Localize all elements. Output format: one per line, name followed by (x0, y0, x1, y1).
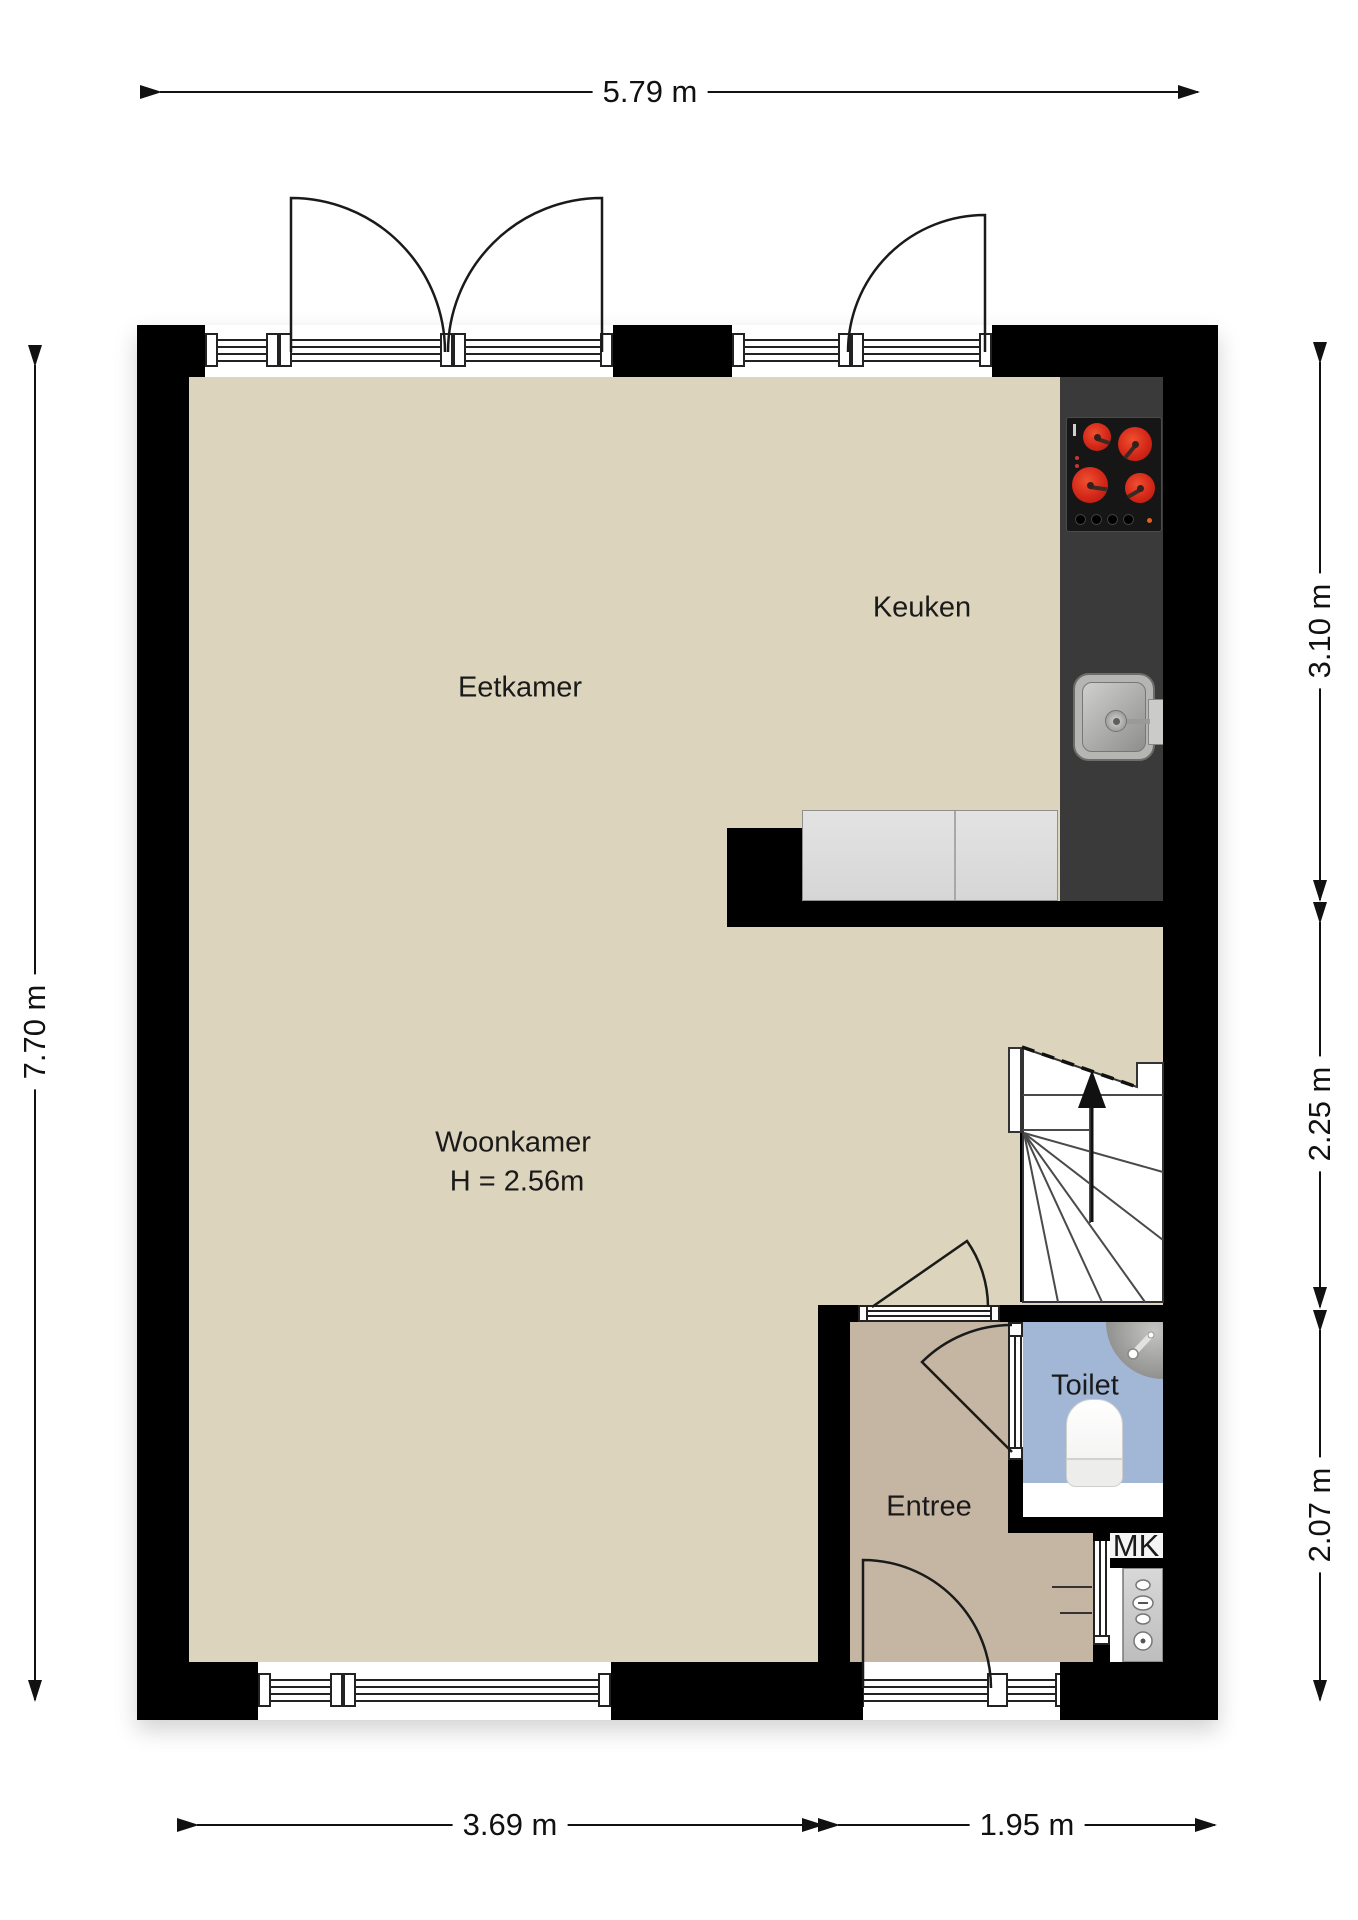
wall-bottom-right (1060, 1662, 1218, 1720)
cooktop (1066, 417, 1162, 532)
wall-top-corner (137, 325, 205, 377)
cooktop-indicator (1147, 518, 1152, 523)
wall-bottom-left (137, 1662, 258, 1720)
wall-entree-top-a (818, 1305, 858, 1322)
window-post (600, 333, 613, 367)
front-door-panel (863, 1679, 988, 1702)
door-post (990, 1305, 1000, 1322)
window-post (258, 1673, 271, 1707)
floorplan-canvas: 5.79 m 7.70 m 3.10 m 2.25 m 2.07 m 3.69 … (0, 0, 1358, 1920)
dim-right-entree: 2.07 m (1300, 1458, 1340, 1573)
window-post (266, 333, 279, 367)
wall-kitchen-divider (802, 901, 1163, 927)
wall-toilet-left (1008, 1460, 1023, 1517)
cooktop-knob (1123, 514, 1134, 525)
mk-door-panel (1093, 1541, 1110, 1635)
meter-strip (1110, 1568, 1123, 1662)
toilet-door-panel (1008, 1337, 1023, 1447)
room-label-mk: MK (1113, 1528, 1160, 1564)
window-post (343, 1673, 356, 1707)
stairs-newel (1008, 1047, 1022, 1133)
dim-top-width: 5.79 m (593, 72, 708, 112)
burner (1072, 467, 1108, 503)
entree-floor-nook (1008, 1533, 1093, 1662)
dim-right-kitchen: 3.10 m (1300, 574, 1340, 689)
room-label-eetkamer: Eetkamer (458, 672, 582, 705)
wall-peninsula-end (727, 828, 802, 927)
window-post (979, 333, 992, 367)
toilet-shelf (1023, 1483, 1163, 1517)
door-post (987, 1673, 1008, 1707)
cooktop-knob (1075, 514, 1086, 525)
faucet-head (1105, 710, 1127, 732)
kitchen-cabinet (802, 810, 1058, 901)
door-post (1008, 1447, 1023, 1460)
window-post (279, 333, 292, 367)
room-label-keuken: Keuken (873, 592, 971, 625)
room-label-entree: Entree (886, 1491, 971, 1524)
window-post (851, 333, 864, 367)
dim-left-height: 7.70 m (15, 975, 55, 1090)
window-post (598, 1673, 611, 1707)
window-post (330, 1673, 343, 1707)
wall-entree-left (818, 1305, 850, 1662)
wall-entree-top-b (1000, 1305, 1163, 1322)
wall-right (1163, 325, 1218, 1720)
wall-mk-top (1093, 1533, 1110, 1541)
stairs-left-edge (1020, 1133, 1023, 1302)
livingroom-window-glazing (258, 1679, 611, 1702)
door-post (1008, 1322, 1023, 1337)
wall-bottom-middle (611, 1662, 863, 1720)
wall-mk-bottom (1093, 1645, 1110, 1662)
front-sidelight-glazing (1008, 1679, 1057, 1702)
burner (1083, 423, 1111, 451)
window-post (838, 333, 851, 367)
window-post (453, 333, 466, 367)
cooktop-knob (1107, 514, 1118, 525)
door-post (1093, 1635, 1110, 1645)
room-label-toilet: Toilet (1051, 1370, 1119, 1403)
meter-panel (1123, 1568, 1163, 1662)
wall-left (137, 325, 189, 1720)
woonkamer-door-panel (868, 1305, 990, 1322)
dim-right-stairs: 2.25 m (1300, 1057, 1340, 1172)
door-post (858, 1305, 868, 1322)
cooktop-dot (1075, 464, 1079, 468)
wall-top-middle (613, 325, 732, 377)
cooktop-dot (1075, 456, 1079, 460)
toilet-bowl (1066, 1399, 1123, 1487)
room-label-woonkamer-height: H = 2.56m (450, 1166, 585, 1199)
window-post (440, 333, 453, 367)
window-post (732, 333, 745, 367)
room-label-woonkamer: Woonkamer (435, 1127, 591, 1160)
burner (1118, 427, 1152, 461)
burner (1125, 473, 1155, 503)
cooktop-knob (1091, 514, 1102, 525)
window-post (205, 333, 218, 367)
cooktop-mark (1073, 424, 1076, 436)
dim-bottom-entree: 1.95 m (970, 1805, 1085, 1845)
dim-bottom-livingroom: 3.69 m (453, 1805, 568, 1845)
